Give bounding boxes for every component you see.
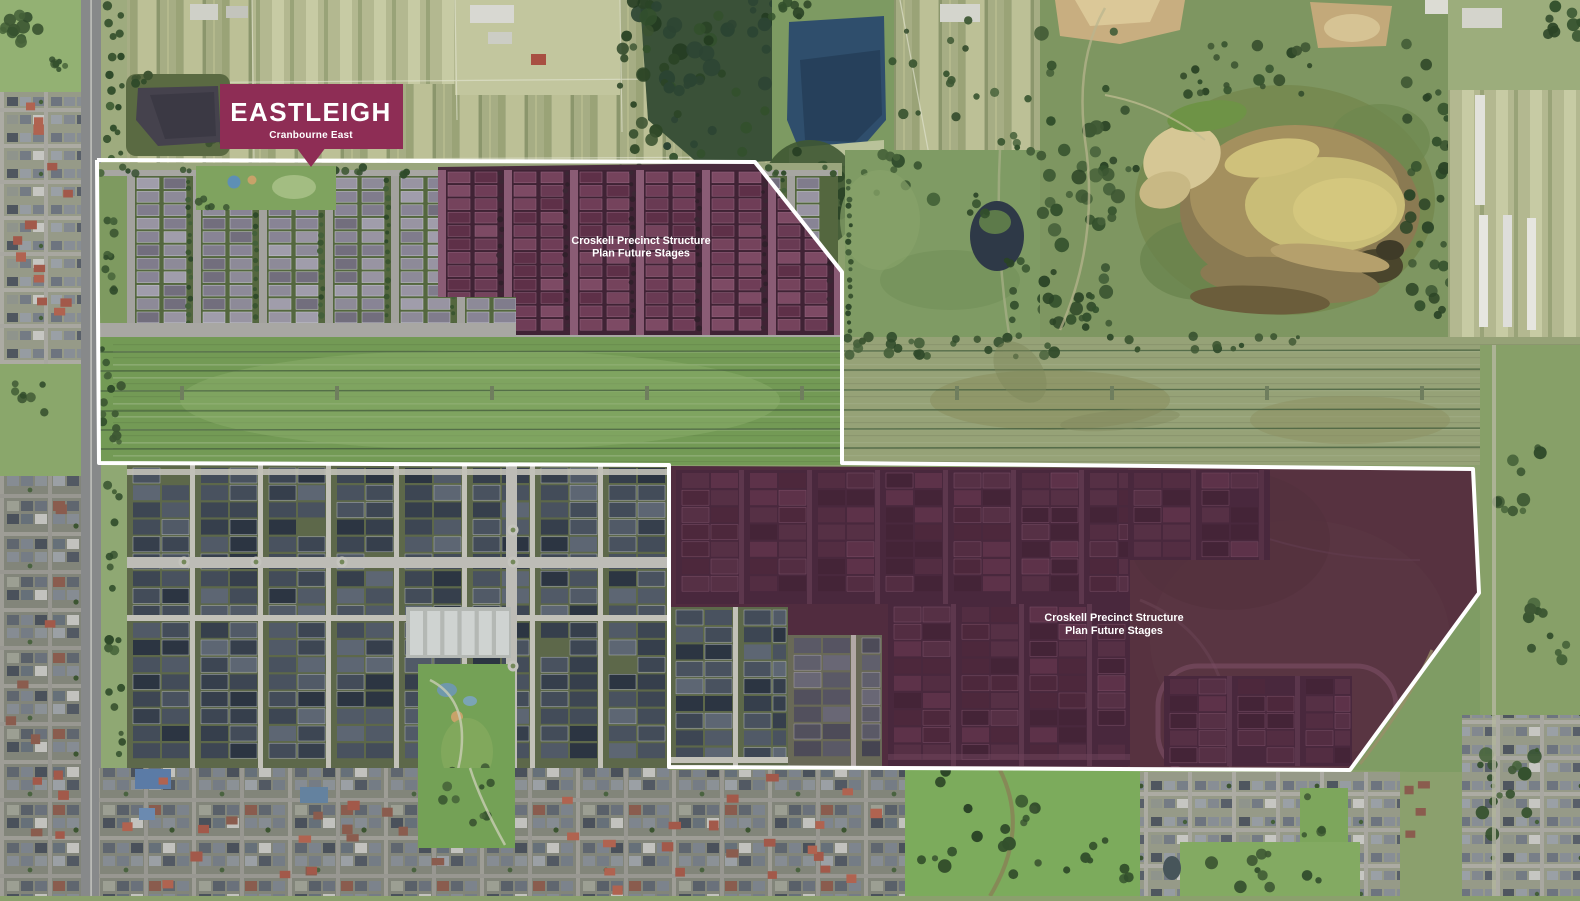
svg-text:Plan Future Stages: Plan Future Stages [1065, 625, 1163, 637]
svg-text:Cranbourne East: Cranbourne East [269, 130, 353, 141]
svg-text:Croskell Precinct Structure: Croskell Precinct Structure [571, 235, 710, 247]
svg-text:EASTLEIGH: EASTLEIGH [230, 97, 391, 127]
svg-text:Plan Future Stages: Plan Future Stages [592, 248, 690, 260]
svg-text:Croskell Precinct Structure: Croskell Precinct Structure [1044, 612, 1183, 624]
